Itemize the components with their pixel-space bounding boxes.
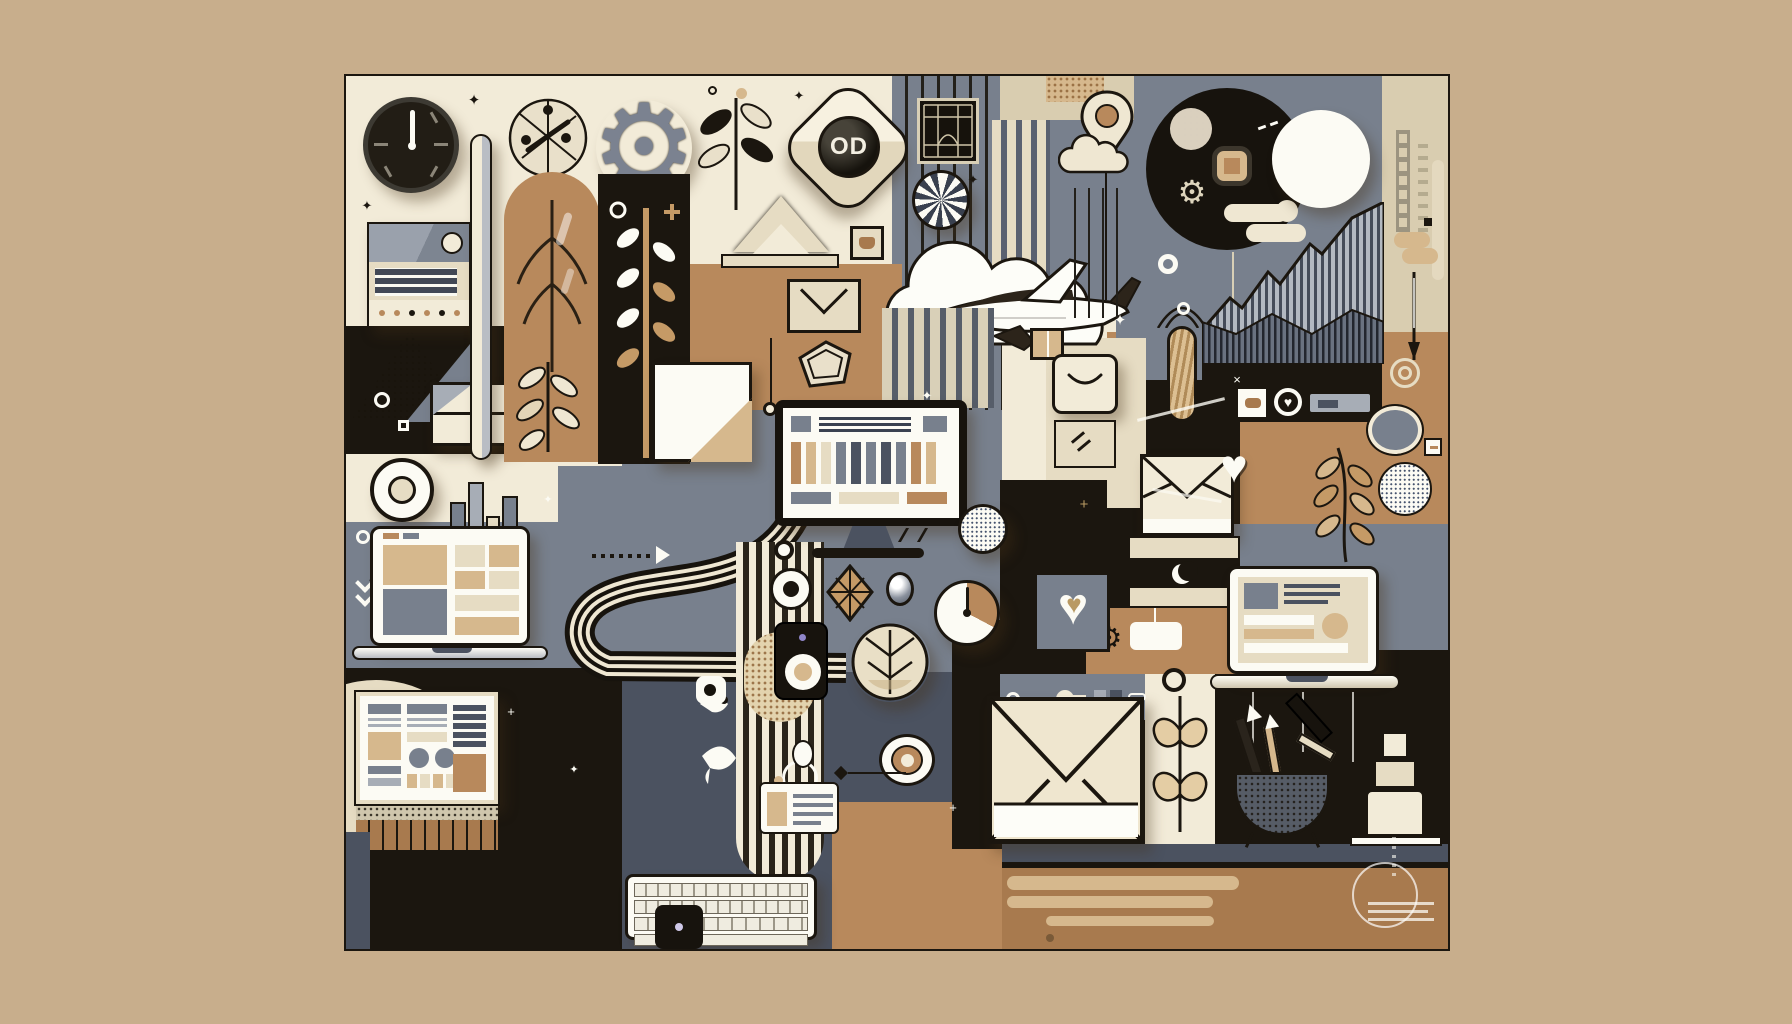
sparkle-icon: ✦ (966, 172, 980, 186)
tab (403, 533, 419, 539)
connector-line (848, 772, 906, 774)
lattice-picture (917, 98, 979, 164)
leaf-coin (850, 622, 930, 702)
laptop-left-base (352, 646, 548, 660)
parcel-facet (433, 385, 471, 415)
cloud-outline (1058, 132, 1130, 178)
sparkle-icon: ✦ (1112, 312, 1128, 328)
pentagon-badge (792, 338, 856, 392)
roof-base (721, 254, 839, 268)
square-dot (1424, 218, 1432, 226)
timer-pie (934, 580, 1000, 646)
egg (792, 740, 814, 768)
knob-ring (770, 568, 812, 610)
folded-letter (652, 362, 752, 462)
laptop-right-base (1210, 674, 1400, 690)
photo-square (1235, 386, 1269, 420)
stack-band (1128, 536, 1240, 560)
pillar-ring (1162, 668, 1186, 692)
ring-dot (1158, 254, 1178, 274)
ring-dot (356, 530, 370, 544)
accent-dot (736, 88, 747, 99)
webpage-col (453, 704, 486, 792)
sparkle-icon: ✦ (792, 88, 806, 102)
envelope-outline-icon (787, 279, 861, 333)
needle (1404, 272, 1424, 362)
desktop-monitor (775, 400, 967, 526)
clock-tick (434, 143, 448, 146)
sparkle-icon: ✦ (360, 198, 374, 212)
dash-column (1392, 836, 1396, 876)
tablet-mini (655, 905, 703, 949)
moon (1272, 110, 1370, 208)
heart-leaf-plant (1147, 696, 1213, 836)
cross-icon: × (1230, 372, 1244, 386)
screen-tile (489, 571, 519, 589)
sand-dollar-medallion (506, 94, 590, 182)
screen-block (383, 545, 447, 585)
glossy-button (886, 572, 914, 606)
sparkle-icon: ✦ (920, 388, 934, 402)
hang-line (1181, 422, 1183, 456)
laptop-left-screen (370, 526, 530, 646)
smile-bag (1052, 354, 1118, 414)
webpage-col (368, 704, 401, 792)
bullseye (879, 734, 935, 786)
sparkle-icon: + (504, 704, 518, 718)
clock-tick (374, 143, 388, 146)
capsule-bar-3 (1046, 916, 1214, 926)
sparkle-icon: + (946, 800, 960, 814)
capsule-bar-1 (1007, 876, 1239, 890)
webpage-col (407, 704, 447, 792)
note-card (759, 782, 839, 834)
dotted-sphere (958, 504, 1008, 554)
heart-key-bar (1308, 392, 1372, 414)
block-sculpture (1360, 732, 1430, 846)
clock-tick (430, 166, 439, 178)
screen-tile (489, 545, 519, 567)
screen-tile (455, 545, 485, 567)
radio-display (375, 268, 457, 296)
square-dot (398, 420, 409, 431)
accent-dot (1046, 934, 1054, 942)
scribble-line (1368, 918, 1434, 921)
pencil-cup (1230, 716, 1340, 846)
screen-bar (455, 617, 519, 635)
stripe-band (882, 308, 994, 408)
stripe-mountains (1202, 202, 1384, 364)
laptop-right-screen (1227, 566, 1379, 674)
sparkle-icon: ✦ (466, 92, 482, 108)
circuit-line (770, 338, 772, 408)
heart-icon: ♥ (1061, 591, 1087, 617)
stack-band (1128, 586, 1240, 608)
concentric-rings (1390, 358, 1420, 388)
radio-card (367, 222, 471, 326)
mini-square (1424, 438, 1442, 456)
bird-doodles (690, 686, 750, 806)
screen-tile (455, 571, 485, 589)
sparkle-icon: ✦ (568, 764, 580, 776)
radio-button (441, 232, 463, 254)
sparkle-icon: + (1076, 496, 1092, 512)
webpage-card (356, 692, 498, 804)
screen-block (383, 589, 447, 635)
knob-small (774, 540, 794, 560)
leaf-veins (504, 172, 600, 462)
lens-button: OD (818, 116, 880, 178)
clock-tick (430, 112, 439, 124)
laptop-right-page (1238, 577, 1368, 663)
dashboard-screen (783, 408, 959, 518)
key-row (634, 883, 808, 897)
monitor-base (812, 548, 924, 558)
leaf-branch (694, 90, 778, 212)
scribble-line (1368, 910, 1428, 913)
ring-dot (1177, 302, 1190, 315)
halftone-strip (356, 806, 498, 820)
capsule-bar (470, 134, 492, 460)
heart-icon: ♥ (1208, 442, 1260, 490)
black-strip (558, 668, 622, 949)
scribble-line (1368, 902, 1434, 905)
ring-dot (374, 392, 390, 408)
ring-dot (708, 86, 717, 95)
corner-tile (346, 832, 370, 949)
clock-center (408, 142, 416, 150)
capsule-bar-2 (1007, 896, 1213, 908)
dotted-sphere-2 (1378, 462, 1432, 516)
scribble-box (1054, 420, 1116, 468)
tick-strip (1396, 130, 1410, 232)
roof-inner (749, 224, 813, 258)
tab (383, 533, 399, 539)
hang-line (1352, 692, 1354, 762)
s-bracket-bottom (1402, 248, 1438, 264)
slab-lines (1062, 188, 1122, 318)
s-bracket-top (1394, 232, 1430, 248)
leaf-sprig (1308, 440, 1382, 564)
heart-tile: ♥ ♥ (1034, 572, 1110, 652)
big-envelope (987, 696, 1145, 844)
screen-bar (455, 595, 519, 611)
diamond-leaf (826, 564, 874, 622)
donut-hole (388, 476, 416, 504)
leaf-arch-column (504, 172, 600, 462)
blob-icon (696, 676, 726, 704)
brown-slats (356, 820, 498, 850)
radio-dot-row (369, 300, 469, 326)
wall-clock (363, 97, 459, 193)
speaker (774, 622, 828, 700)
crescent-band (1128, 560, 1240, 586)
heart-key-bow: ♥ (1274, 388, 1302, 416)
clock-hand (410, 110, 415, 146)
keyboard (625, 874, 817, 940)
donut (370, 458, 434, 522)
illustration-canvas: ✦ ✦ (0, 0, 1792, 1024)
clock-tick (384, 166, 393, 178)
sparkle-icon: ✦ (542, 494, 554, 506)
collage-frame: ✦ ✦ (344, 74, 1450, 951)
